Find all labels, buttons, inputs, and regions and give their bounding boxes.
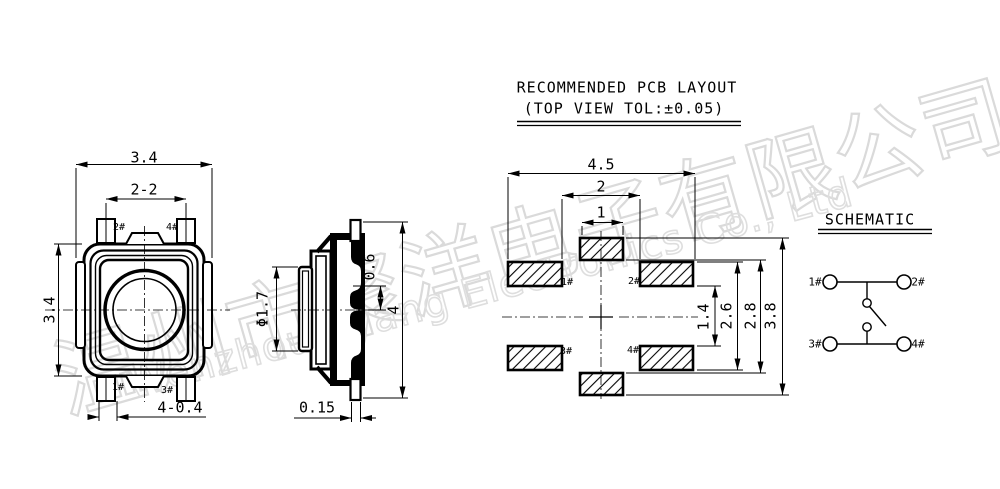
schematic-pin3-label: 3# — [808, 339, 821, 350]
dim-label-pcb-overall-width: 4.5 — [587, 158, 614, 173]
top-view-pin3-label: 3# — [161, 386, 173, 396]
pcb-pad-bottom — [580, 373, 623, 395]
schematic-view — [818, 230, 932, 352]
top-view-pin1-label: 1# — [112, 383, 124, 393]
schematic-pin3-circle — [823, 337, 837, 351]
pcb-center-cross — [589, 305, 613, 329]
switch-side-view — [272, 220, 408, 422]
pcb-layout-view — [502, 122, 789, 400]
schematic-contact-top — [863, 299, 871, 307]
pcb-layout-title: RECOMMENDED PCB LAYOUT — [517, 81, 738, 96]
pcb-pad2-label: 2# — [628, 277, 640, 287]
pcb-pad1-label: 1# — [561, 278, 573, 288]
pcb-pad-3 — [508, 346, 562, 370]
dim-label-pcb-center-pad-width: 1 — [596, 206, 605, 221]
dim-label-pcb-pad-inner-span: 2 — [596, 180, 605, 195]
pcb-pad-top — [580, 238, 623, 260]
dim-label-pcb-overall-height: 3.8 — [764, 302, 779, 329]
dim-label-pcb-side-pad-gap: 1.4 — [697, 303, 712, 330]
dim-label-button-diameter: Φ1.7 — [256, 291, 271, 327]
dim-label-top-width: 3.4 — [130, 151, 157, 166]
schematic-pin1-circle — [823, 275, 837, 289]
schematic-pin4-label: 4# — [911, 339, 924, 350]
pcb-pad-4 — [640, 346, 693, 370]
dim-label-step: 0.6 — [363, 253, 378, 280]
schematic-pin2-label: 2# — [911, 277, 924, 288]
pcb-pad-2 — [640, 262, 693, 286]
schematic-pin1-label: 1# — [808, 277, 821, 288]
pcb-layout-subtitle: (TOP VIEW TOL:±0.05) — [524, 102, 725, 117]
drawing-linework — [0, 0, 1000, 489]
schematic-contact-bottom — [863, 323, 871, 331]
dim-label-side-height: 4 — [387, 305, 402, 314]
dim-label-top-height: 3.4 — [43, 296, 58, 323]
dim-label-pad-width: 4-0.4 — [157, 401, 202, 416]
schematic-pin2-circle — [897, 275, 911, 289]
dim-label-pcb-center-pad-gap: 2.8 — [744, 302, 759, 329]
dim-label-terminal-thickness: 0.15 — [299, 401, 335, 416]
dim-button-diameter — [272, 267, 298, 351]
switch-top-view — [45, 165, 230, 422]
schematic-title: SCHEMATIC — [825, 213, 915, 228]
dim-label-pin-span: 2-2 — [130, 183, 157, 198]
drawing-canvas: 温州市聚洋电子有限公司 Wenzhou Jiyang Electronics C… — [0, 0, 1000, 489]
schematic-pin4-circle — [897, 337, 911, 351]
top-view-pin4-label: 4# — [166, 223, 178, 233]
top-view-pin2-label: 2# — [113, 223, 125, 233]
pcb-pad3-label: 3# — [560, 347, 572, 357]
dim-pcb-center-pad-width — [582, 223, 623, 236]
dim-label-pcb-side-pad-span: 2.6 — [720, 302, 735, 329]
pcb-pad-1 — [508, 262, 562, 286]
schematic-wires — [837, 282, 897, 344]
pcb-pad4-label: 4# — [627, 346, 639, 356]
